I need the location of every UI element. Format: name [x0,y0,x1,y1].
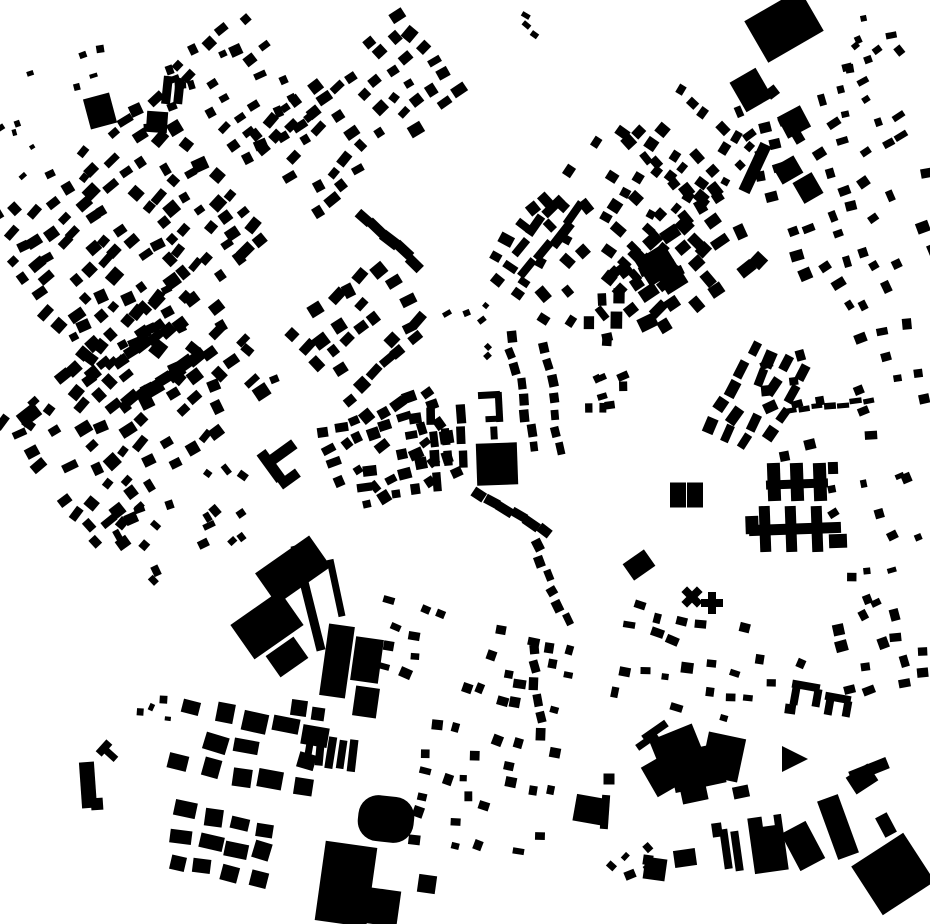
building [650,626,665,638]
building [431,719,443,730]
building [333,475,346,488]
building [863,55,873,64]
building [686,97,699,110]
building [491,734,504,748]
building-twin-b [687,483,703,508]
building [795,349,807,362]
building [374,438,391,454]
building [224,189,237,202]
building [828,210,839,223]
building [743,694,753,701]
compound-s-bar-c [811,506,824,552]
building [504,670,514,679]
cluster-top-dots [514,10,545,40]
building [680,662,694,674]
building [914,533,923,542]
building [14,120,22,128]
building [427,55,442,68]
building [559,253,576,269]
building [789,249,805,263]
building [534,285,551,303]
building [509,696,521,708]
building [674,239,691,256]
building [69,332,80,342]
building [388,7,406,24]
building [192,858,212,874]
cluster-mid-left [280,250,445,411]
building [343,125,360,141]
compound-s-left [745,516,759,534]
building [159,162,172,176]
building [194,204,206,215]
building [150,237,166,252]
building-ne-slab-3 [792,172,823,204]
building [865,431,878,440]
building [7,255,19,267]
building [585,403,592,412]
building [530,30,540,39]
building [181,699,201,716]
building [362,500,372,509]
building [595,305,610,321]
building [148,703,156,712]
building [597,293,606,306]
building [386,65,399,78]
building [123,484,139,500]
building [166,233,179,246]
building [233,738,260,756]
building [336,151,352,168]
building [61,459,79,473]
building [123,233,140,249]
building [132,435,149,453]
u-a-left [789,686,800,705]
building [504,776,517,788]
building [16,271,30,285]
building [405,430,418,440]
building [237,206,250,219]
building-ne-giant [744,0,823,63]
building [717,141,731,156]
building [882,137,895,149]
building [575,243,591,259]
building [529,677,539,690]
building [860,662,870,671]
building [562,612,574,626]
building [253,70,267,81]
cluster-ne-corner [827,5,907,80]
building [230,816,251,832]
building [543,569,554,582]
building [601,243,617,259]
cluster-ne-mid [596,186,771,349]
building [725,405,744,426]
building [249,869,270,889]
building [519,409,530,422]
building [616,370,629,381]
building [244,373,260,389]
building [201,756,223,779]
building [621,852,630,861]
building [634,600,647,611]
building [328,167,340,180]
building [113,224,128,238]
building [0,123,5,131]
building [323,191,341,208]
building [696,106,709,120]
slab-west-a [255,536,331,605]
building-bars-a [161,76,173,105]
building [138,539,150,551]
building [542,358,553,371]
compound-n-tab [828,462,838,474]
building [729,669,740,678]
building [456,426,465,444]
building [858,300,869,312]
building [31,285,48,300]
cluster-south-col [524,644,549,742]
building [373,127,385,139]
building [398,106,411,119]
building [706,659,716,667]
building-nw-blob [83,93,117,130]
building [661,673,669,680]
building [836,85,845,94]
building [384,474,397,486]
building [926,242,930,256]
building [894,130,909,142]
building-twin-a [670,483,686,508]
building [561,284,574,297]
cluster-ne-left [594,77,760,245]
building [532,694,543,708]
building [366,311,381,327]
building-square-nw [146,111,168,133]
building [376,489,392,505]
building [844,300,855,311]
building [435,609,446,619]
building [103,327,118,342]
building [0,414,10,431]
building [403,78,414,89]
building [529,644,539,654]
building [863,397,875,404]
building [898,678,911,688]
building [726,693,736,701]
building [623,869,636,881]
building [334,178,348,192]
building [78,51,87,59]
building [91,387,107,403]
building [344,71,358,84]
building [762,425,779,443]
building [306,301,324,319]
building [119,165,133,178]
building [607,198,624,215]
building [247,99,261,112]
building [326,456,342,469]
building [605,170,620,184]
building [166,386,181,400]
building [44,169,55,179]
building [256,768,284,790]
building [549,392,559,403]
building [401,25,419,43]
building [367,74,382,88]
building [235,508,246,519]
band-huge [851,833,930,915]
cluster-mid-col-a [501,329,542,453]
building [512,847,524,855]
building [141,453,157,468]
building [843,684,856,695]
building [503,761,515,771]
building [60,181,75,196]
building [546,585,559,597]
building [885,189,896,202]
building [408,834,421,845]
building [177,223,191,237]
building-footprint-canvas [0,0,930,924]
building [845,64,854,74]
building [353,464,364,475]
building [654,122,671,138]
building [429,431,439,447]
building [834,639,849,653]
building [833,229,844,239]
building-plus-b [708,592,716,614]
building-ne-square [777,105,811,138]
building [737,432,752,450]
building [857,405,870,416]
slab-mid-a [319,624,355,699]
building [293,777,314,797]
building [535,711,546,724]
building [204,220,218,234]
building [421,749,430,758]
building [353,319,369,334]
building [519,393,529,405]
building [366,363,383,380]
building [688,295,705,313]
building [368,480,381,494]
building [874,508,885,519]
building [450,81,468,98]
blob-se-tail [732,784,750,799]
building [134,156,147,169]
building-central-square [476,442,518,485]
building [209,167,226,184]
blob-se-c [700,732,746,783]
building [536,312,550,325]
building [207,424,225,441]
building [803,438,816,451]
building [739,622,751,633]
building [43,403,56,416]
building [223,841,249,860]
building [797,267,813,283]
building [311,205,325,220]
building [178,191,190,203]
building [853,332,868,345]
building [817,93,827,106]
building [484,343,492,351]
building [529,659,541,673]
building [271,715,300,735]
building [119,368,134,382]
building [891,258,903,270]
slab-mid-b [350,636,384,683]
building [606,860,617,871]
building [102,478,114,490]
building [350,431,363,444]
slab-mid-c [352,685,380,718]
building [892,110,906,122]
figure-ground-map [0,0,930,924]
building-slant-quad [623,549,656,580]
building [226,139,240,153]
building-triangle [782,746,808,772]
building [547,658,557,669]
building [107,301,119,313]
building [719,714,728,722]
building [143,479,156,493]
cluster-west-edge-dots [0,115,46,181]
building [37,304,54,322]
building [744,141,755,153]
building [160,305,175,319]
building [857,247,869,259]
building [343,393,357,407]
building [339,331,355,347]
building [664,295,681,312]
building [7,201,22,216]
building [442,309,452,318]
building [81,261,98,278]
building [157,215,171,229]
building [29,144,35,150]
building [228,43,243,58]
building [94,308,109,323]
building [675,84,686,96]
building [802,223,816,234]
building [354,139,367,152]
building [336,740,348,769]
building [818,260,832,273]
building [459,450,468,467]
building [432,472,442,492]
building [187,80,196,90]
building [521,11,531,20]
building [327,344,340,358]
building [208,299,226,316]
building [670,203,681,215]
building [133,505,145,515]
building [135,281,147,293]
building [522,20,532,29]
building [623,621,636,629]
building [103,452,122,471]
band-small [875,812,897,838]
building [787,226,799,237]
cluster-west-rows-2 [162,799,281,890]
building [841,110,850,118]
building [762,399,779,414]
building [590,136,603,149]
building [383,640,395,651]
cluster-se-right [829,604,930,701]
building [734,159,745,170]
compound-s-bar-a [759,506,772,552]
building [74,419,93,437]
building [4,225,20,241]
building [390,622,402,632]
building [408,412,422,424]
band-notch [761,813,775,827]
building [584,316,594,329]
building [462,309,471,317]
building [398,50,414,66]
building-small-square [417,874,437,894]
building [451,722,461,733]
building [26,70,34,77]
building [388,30,403,45]
building [300,724,330,748]
building [69,506,84,522]
building [362,36,376,50]
building [241,151,254,165]
building [844,200,857,212]
building [150,564,162,577]
building [474,682,485,694]
band-l-b [642,854,653,865]
band-hook [711,822,723,837]
building [330,317,348,335]
building [73,83,81,91]
building [837,185,851,197]
building [915,220,930,235]
building [391,489,401,498]
building [889,633,901,643]
building [215,702,236,725]
building [812,146,827,161]
building [669,150,682,163]
building [778,354,794,373]
building [369,261,388,280]
building [354,297,368,312]
building [543,218,557,232]
building [704,212,722,229]
building [214,22,229,36]
building [101,373,118,390]
building [348,415,361,427]
building [450,818,460,826]
building [599,403,606,413]
building [169,457,183,470]
building-ne-annex [730,68,773,112]
building [377,419,392,432]
building [437,95,453,109]
building [764,191,778,204]
u-b-right [842,700,853,717]
building [69,273,83,287]
building [827,485,836,494]
building [116,113,133,128]
building [623,302,639,318]
building [478,800,491,811]
building [58,212,71,225]
building [83,495,100,511]
